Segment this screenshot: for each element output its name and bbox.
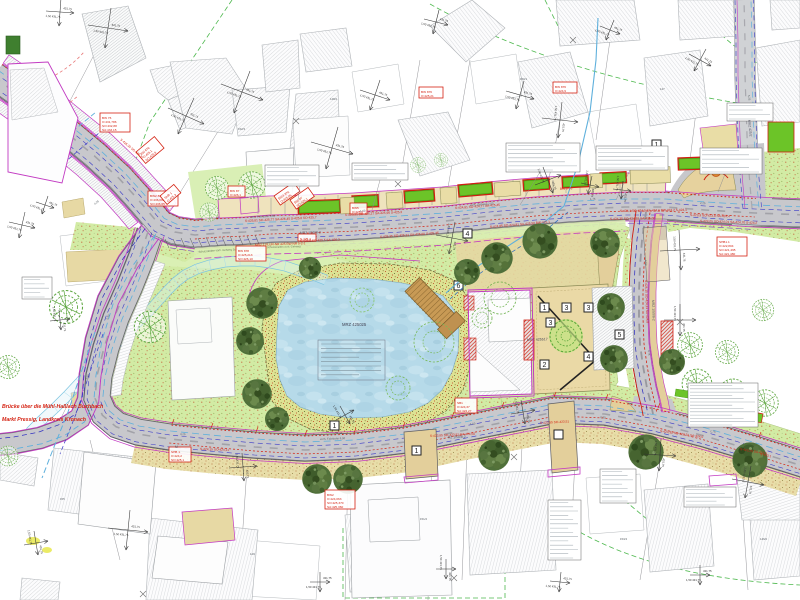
svg-text:3: 3 — [565, 305, 569, 312]
svg-text:6: 6 — [457, 283, 461, 290]
svg-text:155: 155 — [60, 497, 65, 501]
svg-text:431,75: 431,75 — [63, 6, 72, 11]
svg-text:431,75: 431,75 — [131, 524, 140, 529]
svg-text:SO:436,65: SO:436,65 — [150, 202, 165, 206]
svg-text:Markt Pressig, Landkreis Krona: Markt Pressig, Landkreis Kronach — [2, 417, 86, 423]
svg-text:SA:425,360: SA:425,360 — [327, 505, 343, 509]
svg-text:O:425,21: O:425,21 — [421, 94, 434, 98]
svg-text:431,75: 431,75 — [703, 569, 712, 573]
svg-text:431,75: 431,75 — [682, 253, 686, 262]
svg-text:1,50: 1,50 — [470, 421, 476, 425]
svg-text:3: 3 — [549, 320, 553, 327]
svg-text:431,75: 431,75 — [448, 572, 452, 581]
svg-text:2: 2 — [543, 362, 547, 369]
svg-text:MRZ 1/50/8-2: MRZ 1/50/8-2 — [300, 230, 321, 235]
svg-text:O:426,1: O:426,1 — [230, 193, 241, 197]
svg-text:150/1: 150/1 — [520, 77, 527, 81]
svg-text:1,50 431,75: 1,50 431,75 — [306, 585, 321, 589]
svg-text:148/2: 148/2 — [330, 97, 337, 101]
svg-text:3,75: 3,75 — [647, 350, 651, 356]
svg-text:SA:421,480: SA:421,480 — [719, 252, 735, 256]
svg-text:431,75: 431,75 — [623, 193, 628, 202]
svg-text:3,25: 3,25 — [180, 432, 186, 436]
svg-text:1,50 431,75: 1,50 431,75 — [439, 555, 443, 570]
svg-text:146/2: 146/2 — [760, 537, 767, 541]
svg-text:431,75: 431,75 — [323, 576, 332, 580]
svg-text:BW 8-76: BW 8-76 — [560, 186, 573, 191]
svg-text:2,25: 2,25 — [700, 201, 706, 205]
svg-text:2,00: 2,00 — [600, 415, 606, 419]
svg-text:SO:426,10: SO:426,10 — [238, 257, 253, 261]
svg-text:4,50: 4,50 — [644, 260, 648, 266]
svg-text:1,50 431,75: 1,50 431,75 — [673, 236, 678, 251]
svg-text:149: 149 — [250, 552, 255, 556]
svg-text:Brücke über die Mühl-Haßlach B: Brücke über die Mühl-Haßlach Buchbach — [2, 404, 103, 410]
svg-text:MRZ 425517: MRZ 425517 — [527, 337, 548, 342]
svg-text:1,50: 1,50 — [360, 209, 366, 213]
svg-text:SO:425,1: SO:425,1 — [171, 458, 184, 462]
svg-text:1,75: 1,75 — [590, 197, 596, 201]
svg-text:S-424,35 SO-424,31 SA-425,00: S-424,35 SO-424,31 SA-425,00 — [610, 216, 655, 221]
svg-text:151/2: 151/2 — [420, 517, 427, 521]
svg-text:1: 1 — [333, 423, 337, 430]
svg-text:1,50 431,75: 1,50 431,75 — [686, 578, 701, 582]
svg-text:431,75: 431,75 — [561, 123, 566, 132]
svg-text:SA:424,27: SA:424,27 — [457, 409, 472, 413]
svg-text:4: 4 — [466, 231, 470, 238]
svg-text:1: 1 — [415, 448, 419, 455]
svg-text:431,75: 431,75 — [62, 322, 67, 331]
svg-text:O:424,9: O:424,9 — [555, 89, 566, 93]
svg-text:1: 1 — [543, 305, 547, 312]
svg-text:5: 5 — [618, 332, 622, 339]
svg-text:1,50 431,75: 1,50 431,75 — [673, 306, 677, 321]
svg-text:153/4: 153/4 — [620, 537, 627, 541]
svg-text:SA:433,15: SA:433,15 — [102, 128, 117, 132]
svg-text:MRZ 1/50/8-2: MRZ 1/50/8-2 — [651, 300, 656, 321]
svg-text:431,75: 431,75 — [245, 469, 250, 478]
svg-text:431,75: 431,75 — [563, 576, 572, 581]
svg-text:5,25: 5,25 — [747, 95, 751, 101]
svg-text:3: 3 — [587, 305, 591, 312]
svg-text:431,75: 431,75 — [661, 458, 666, 467]
svg-text:MRZ 425025: MRZ 425025 — [342, 322, 367, 327]
svg-text:4: 4 — [587, 354, 591, 361]
svg-text:152/3: 152/3 — [238, 127, 245, 131]
svg-text:147: 147 — [660, 87, 665, 91]
